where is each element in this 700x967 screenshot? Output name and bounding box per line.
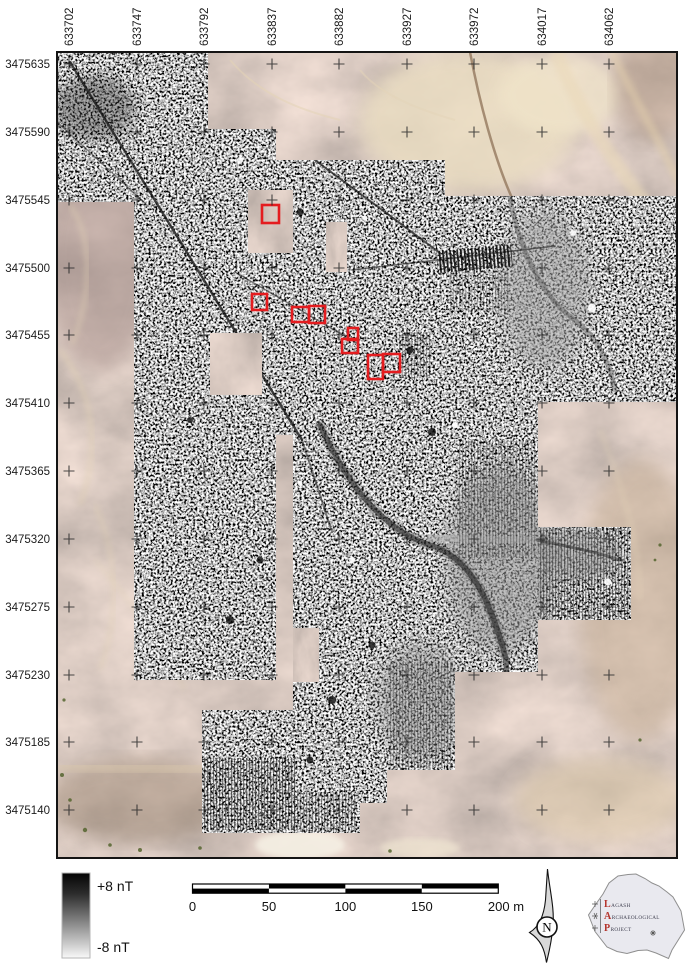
north-needle (530, 869, 554, 963)
scale-tick-label: 0 (189, 899, 196, 914)
north-arrow: N (530, 869, 558, 963)
left-axis-label: 3475635 (5, 59, 50, 71)
left-axis-label: 3475410 (5, 398, 50, 410)
top-axis-label: 634062 (604, 8, 616, 46)
colorbar-legend: +8 nT -8 nT (62, 873, 134, 958)
scale-bar: 0 50 100 150 200 m (189, 884, 524, 914)
top-axis: 633702 633747 633792 633837 633882 63392… (64, 8, 616, 46)
scale-tick-label: 150 (411, 899, 433, 914)
top-axis-label: 633972 (469, 8, 481, 46)
left-axis-label: 3475500 (5, 263, 50, 275)
left-axis-label: 3475590 (5, 127, 50, 139)
left-axis-label: 3475365 (5, 466, 50, 478)
colorbar-min-label: -8 nT (97, 939, 130, 955)
top-axis-label: 633792 (199, 8, 211, 46)
scale-tick-label: 100 (335, 899, 357, 914)
top-axis-label: 633837 (267, 8, 279, 46)
top-axis-label: 633702 (64, 8, 76, 46)
north-label: N (542, 920, 552, 935)
left-axis-label: 3475230 (5, 670, 50, 682)
colorbar-max-label: +8 nT (97, 878, 134, 894)
left-axis-label: 3475185 (5, 737, 50, 749)
top-axis-label: 633882 (334, 8, 346, 46)
top-axis-label: 633927 (402, 8, 414, 46)
left-axis-label: 3475320 (5, 534, 50, 546)
colorbar-gradient (62, 873, 90, 958)
scale-unit-label: 200 m (488, 899, 524, 914)
left-axis-label: 3475545 (5, 195, 50, 207)
project-logo: LAGASH ARCHAEOLOGICAL PROJECT (589, 874, 685, 959)
scale-tick-label: 50 (262, 899, 276, 914)
left-axis-label: 3475455 (5, 330, 50, 342)
figure-page: 633702 633747 633792 633837 633882 63392… (0, 0, 700, 967)
top-axis-label: 633747 (132, 8, 144, 46)
left-axis: 3475635 3475590 3475545 3475500 3475455 … (5, 59, 50, 817)
left-axis-label: 3475140 (5, 805, 50, 817)
map-figure: 633702 633747 633792 633837 633882 63392… (0, 0, 700, 967)
top-axis-label: 634017 (537, 8, 549, 46)
left-axis-label: 3475275 (5, 602, 50, 614)
